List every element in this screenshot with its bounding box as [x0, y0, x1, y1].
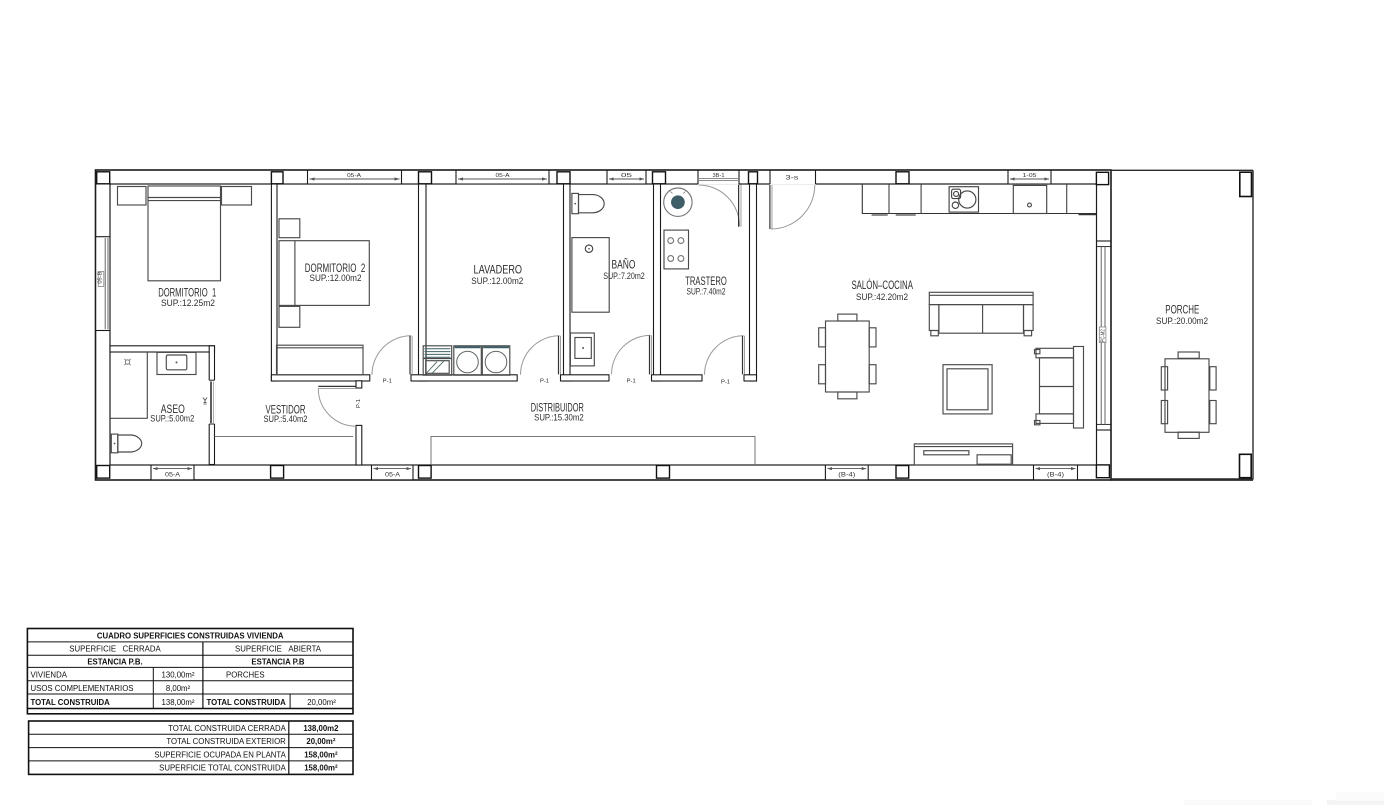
svg-text:SUP.:42.20m2: SUP.:42.20m2 [856, 292, 908, 303]
svg-text:SUP.:5.40m2: SUP.:5.40m2 [264, 414, 308, 425]
svg-text:8,00m²: 8,00m² [166, 684, 191, 693]
svg-text:SALÓN–COCINA: SALÓN–COCINA [851, 277, 913, 292]
svg-text:SUPERFICIE OCUPADA EN PLANTA: SUPERFICIE OCUPADA EN PLANTA [154, 750, 286, 759]
svg-text:138,00m²: 138,00m² [162, 698, 195, 707]
svg-text:SUPERFICIE CERRADA: SUPERFICIE CERRADA [69, 645, 161, 654]
svg-text:TOTAL CONSTRUIDA: TOTAL CONSTRUIDA [31, 698, 111, 707]
svg-text:P-1: P-1 [721, 380, 730, 386]
svg-text:3B-1: 3B-1 [713, 173, 725, 179]
svg-text:20,00m²: 20,00m² [306, 737, 335, 746]
svg-text:PC-M2: PC-M2 [1101, 329, 1107, 342]
svg-text:SUP.:20.00m2: SUP.:20.00m2 [1156, 316, 1208, 327]
svg-text:138,00m2: 138,00m2 [303, 724, 339, 733]
svg-text:SUP.:7.20m2: SUP.:7.20m2 [603, 271, 645, 282]
svg-text:USOS COMPLEMENTARIOS: USOS COMPLEMENTARIOS [31, 684, 134, 693]
svg-text:SUPERFICIE TOTAL CONSTRUIDA: SUPERFICIE TOTAL CONSTRUIDA [159, 764, 286, 773]
svg-text:3-s: 3-s [786, 176, 799, 182]
svg-text:LAVADERO: LAVADERO [474, 263, 523, 277]
svg-text:(B-4): (B-4) [838, 473, 855, 479]
svg-text:05-A: 05-A [347, 173, 361, 179]
svg-text:SUP.:12.00m2: SUP.:12.00m2 [471, 276, 523, 287]
svg-text:1-05: 1-05 [1023, 173, 1037, 179]
svg-text:05-A: 05-A [496, 173, 510, 179]
svg-text:P-1: P-1 [627, 379, 636, 385]
svg-text:P-1: P-1 [383, 379, 392, 385]
svg-text:SUPERFICIE ABIERTA: SUPERFICIE ABIERTA [235, 645, 322, 654]
svg-text:BAÑO: BAÑO [612, 258, 636, 272]
svg-text:P-1: P-1 [356, 399, 362, 408]
svg-text:ESTANCIA P.B.: ESTANCIA P.B. [87, 658, 142, 667]
svg-text:TOTAL CONSTRUIDA: TOTAL CONSTRUIDA [207, 698, 287, 707]
svg-text:PORCHES: PORCHES [226, 670, 265, 679]
svg-text:VIVIENDA: VIVIENDA [31, 670, 68, 679]
svg-text:05-A: 05-A [385, 473, 400, 479]
svg-text:SUP.:12.00m2: SUP.:12.00m2 [310, 273, 362, 284]
svg-text:SUP.:5.00m2: SUP.:5.00m2 [150, 414, 194, 425]
svg-text:SUP.:7.40m2: SUP.:7.40m2 [687, 286, 726, 297]
svg-text:PORCHE: PORCHE [1165, 303, 1199, 317]
svg-text:TOTAL CONSTRUIDA CERRADA: TOTAL CONSTRUIDA CERRADA [168, 724, 286, 733]
svg-text:SUP.:12.25m2: SUP.:12.25m2 [161, 298, 215, 309]
svg-text:158,00m²: 158,00m² [304, 764, 338, 773]
svg-text:CUADRO SUPERFICIES CONSTRUIDAS: CUADRO SUPERFICIES CONSTRUIDAS VIVIENDA [97, 631, 284, 640]
svg-text:20,00m²: 20,00m² [307, 698, 336, 707]
svg-text:05: 05 [621, 173, 632, 179]
svg-text:130,00m²: 130,00m² [162, 670, 195, 679]
svg-text:(B-4): (B-4) [1047, 473, 1064, 479]
svg-text:05-B: 05-B [98, 271, 104, 284]
svg-text:05-A: 05-A [165, 473, 180, 479]
svg-text:ESTANCIA P.B: ESTANCIA P.B [251, 658, 305, 667]
svg-text:P-1: P-1 [540, 379, 549, 385]
svg-text:158,00m²: 158,00m² [304, 750, 338, 759]
svg-text:TOTAL CONSTRUIDA EXTERIOR: TOTAL CONSTRUIDA EXTERIOR [166, 737, 286, 746]
svg-text:SUP.:15.30m2: SUP.:15.30m2 [534, 413, 584, 424]
